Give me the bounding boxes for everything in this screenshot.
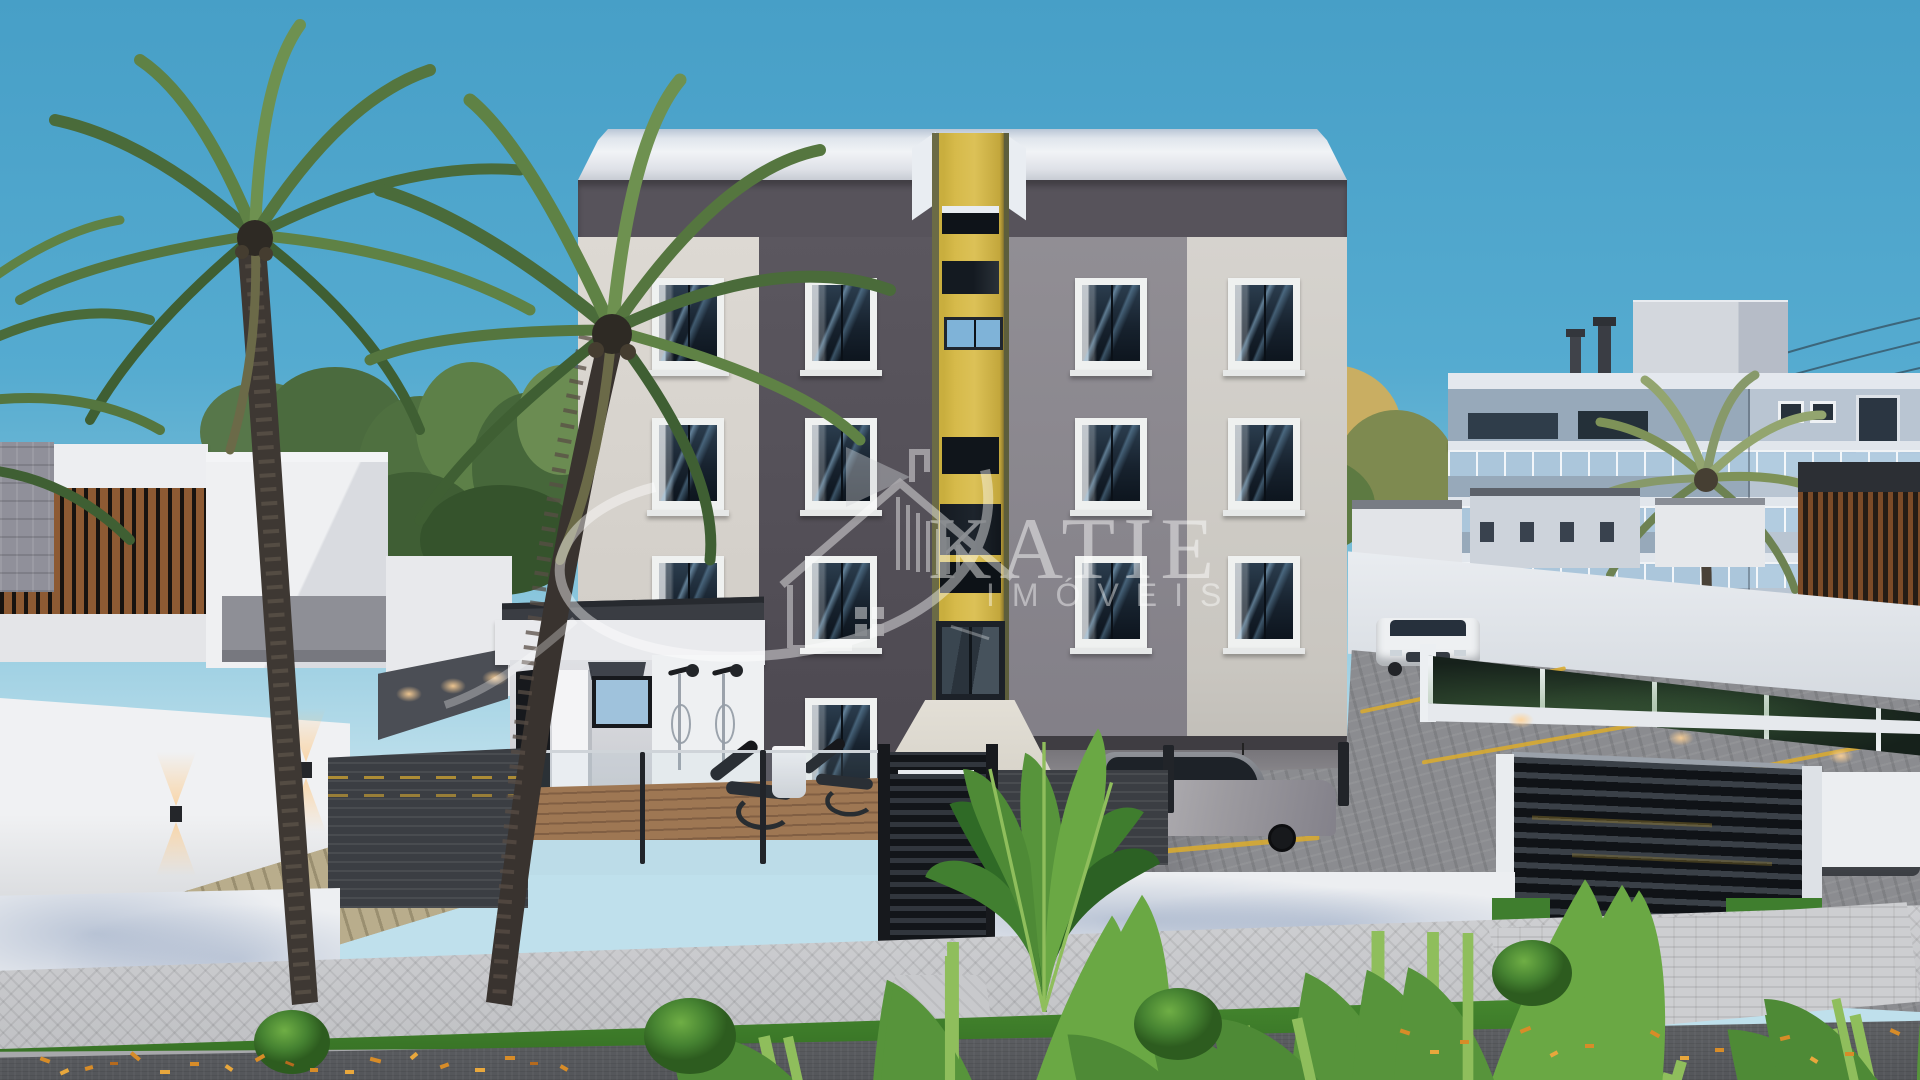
small-window (1810, 401, 1836, 423)
awning-window (592, 676, 652, 728)
floor-slab (1448, 441, 1920, 450)
stair-opening (942, 206, 999, 234)
window (652, 278, 724, 370)
sedan-antenna (1242, 743, 1244, 755)
shower-hose-loop (715, 704, 735, 744)
suv-headlight (1454, 650, 1466, 656)
fence-reflection-line (328, 794, 528, 797)
window (1228, 418, 1300, 510)
door-glass (942, 627, 999, 694)
window-band (1480, 522, 1630, 542)
chimney-cap (1566, 329, 1585, 337)
fence-downlight (1508, 712, 1534, 728)
window (1228, 278, 1300, 370)
gate-accent-rail (898, 770, 974, 774)
suv-headlight (1390, 650, 1402, 656)
window-recess (1578, 411, 1648, 439)
gate-reflection (1532, 815, 1712, 827)
glass-fence-post (640, 752, 645, 864)
window (1075, 278, 1147, 370)
architectural-render-scene: KATIE IMÓVEIS (0, 0, 1920, 1080)
glass-pool-fence (525, 750, 885, 875)
shower-head (730, 664, 743, 677)
door-mullion (969, 627, 972, 694)
glass-fence-post (760, 750, 766, 864)
sedan-wheel (1268, 824, 1296, 852)
suv-windshield (1390, 620, 1466, 636)
window (805, 278, 877, 370)
stair-window (944, 317, 1003, 350)
window (1228, 556, 1300, 648)
base-shadow-stripe (1009, 736, 1347, 750)
stair-opening (940, 504, 1001, 555)
gate-reflection (1572, 853, 1772, 866)
textured-feature-wall (0, 442, 54, 592)
wall-sconce-light (300, 762, 312, 778)
stair-opening (942, 437, 999, 474)
concrete-beam (222, 596, 408, 662)
wall-sconce-light (170, 806, 182, 822)
background-house (1655, 498, 1765, 567)
small-window (1778, 401, 1804, 423)
window-mullion (974, 320, 976, 347)
background-house (1470, 488, 1640, 568)
window (1075, 556, 1147, 648)
stair-transom (940, 562, 1001, 593)
chimney-cap (1593, 317, 1616, 326)
fence-downlight (1828, 748, 1854, 764)
front-fence-dark (328, 748, 528, 908)
window-recess (1468, 413, 1558, 439)
window (652, 418, 724, 510)
rooftop-box (1633, 300, 1788, 382)
fence-downlight (1668, 730, 1694, 746)
stair-opening (942, 261, 999, 294)
lot-fence-post (1338, 742, 1349, 806)
shower-head (686, 664, 699, 677)
wing-wall (1822, 772, 1920, 867)
suv-wheel (1388, 662, 1402, 676)
shower-hose-loop (671, 704, 691, 744)
fence-reflection-line (328, 776, 528, 779)
entrance-glass-door (936, 621, 1005, 700)
slat-volume-base (0, 614, 208, 662)
window (805, 418, 877, 510)
parapet (1448, 373, 1920, 389)
front-fence-dark (998, 770, 1168, 865)
window (1075, 418, 1147, 510)
